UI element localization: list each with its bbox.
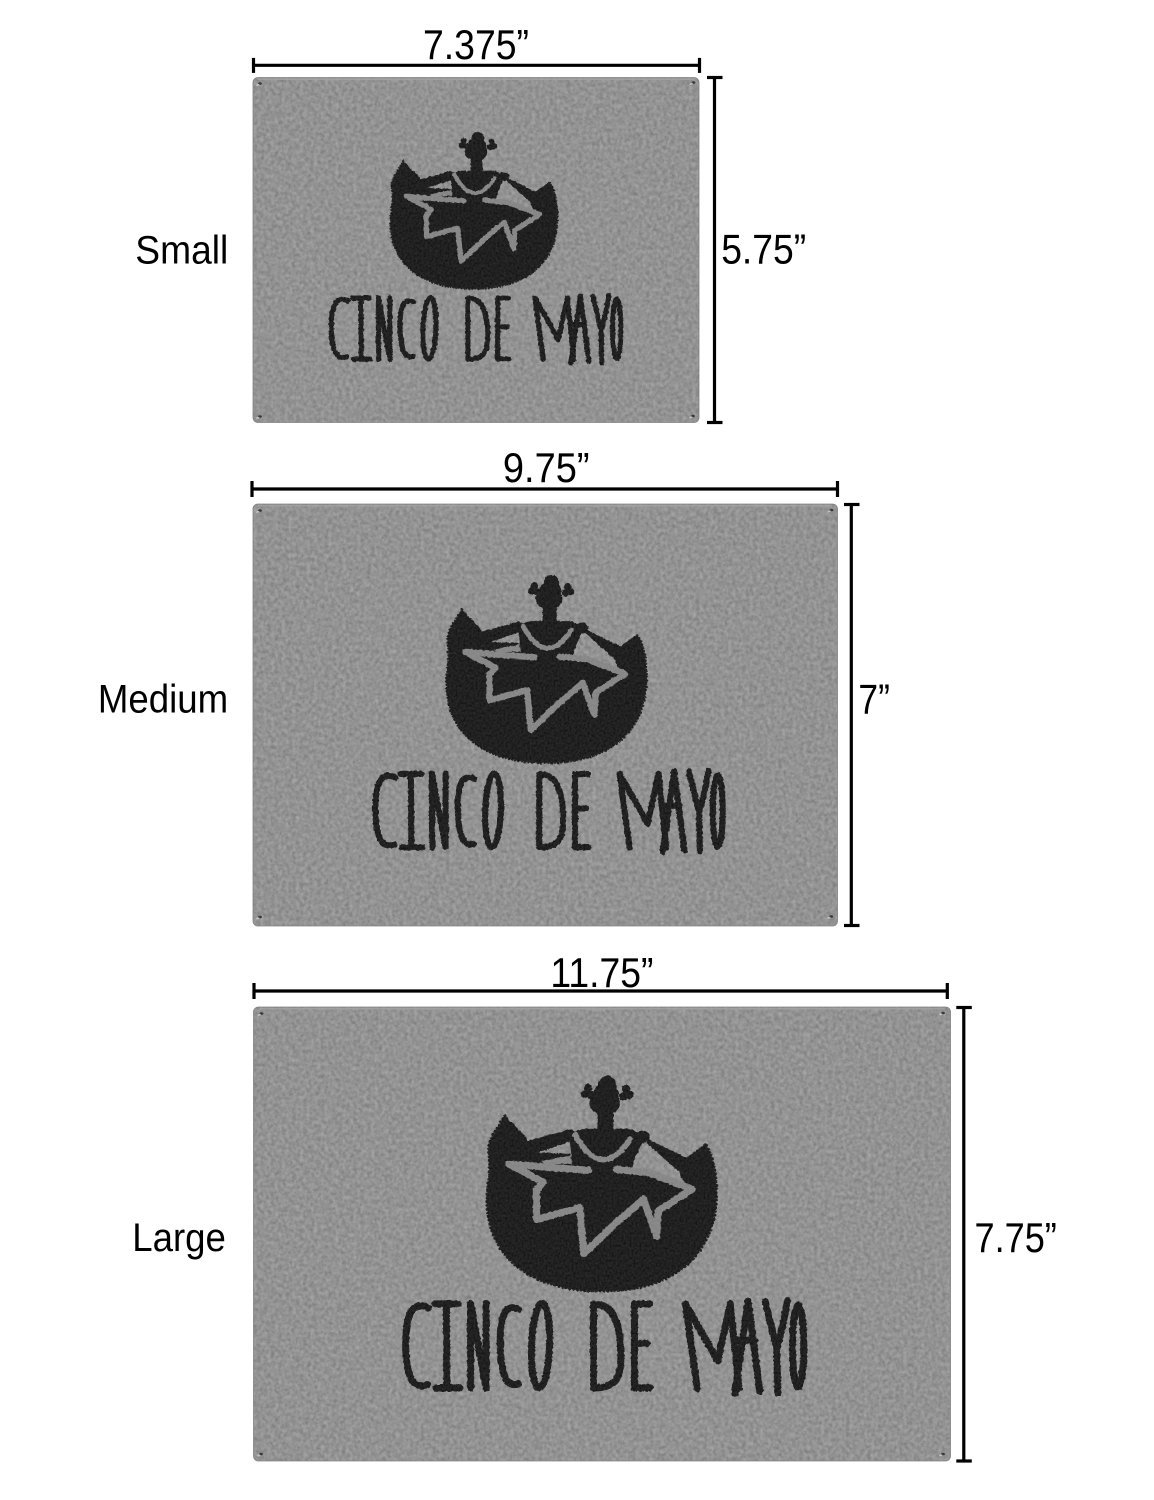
svg-text:Medium: Medium xyxy=(98,677,228,721)
svg-text:7”: 7” xyxy=(858,676,890,723)
svg-text:Large: Large xyxy=(132,1216,226,1260)
svg-text:11.75”: 11.75” xyxy=(550,949,653,996)
svg-text:7.375”: 7.375” xyxy=(423,21,529,68)
svg-text:9.75”: 9.75” xyxy=(503,444,590,491)
svg-text:7.75”: 7.75” xyxy=(975,1214,1057,1261)
svg-text:Small: Small xyxy=(135,228,228,272)
svg-text:5.75”: 5.75” xyxy=(721,225,806,272)
